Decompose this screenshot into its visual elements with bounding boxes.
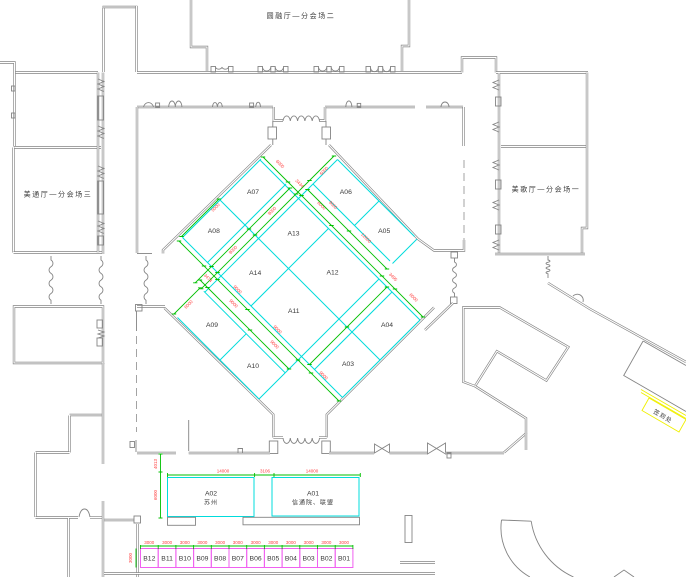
svg-text:A14: A14 xyxy=(249,270,261,277)
svg-text:B05: B05 xyxy=(267,556,279,563)
svg-text:B12: B12 xyxy=(143,556,155,563)
svg-text:信通院、联盟: 信通院、联盟 xyxy=(292,499,334,507)
svg-text:3000: 3000 xyxy=(180,540,191,545)
svg-text:3000: 3000 xyxy=(128,552,133,563)
svg-text:圆融厅—分会场二: 圆融厅—分会场二 xyxy=(267,11,336,20)
svg-text:A10: A10 xyxy=(247,363,259,370)
svg-text:3000: 3000 xyxy=(286,540,297,545)
svg-text:14000: 14000 xyxy=(306,469,319,474)
svg-text:4013: 4013 xyxy=(153,458,158,469)
svg-text:B09: B09 xyxy=(196,556,208,563)
svg-text:B01: B01 xyxy=(338,556,350,563)
svg-text:A07: A07 xyxy=(247,189,259,196)
svg-text:美歌厅—分会场一: 美歌厅—分会场一 xyxy=(512,185,581,194)
svg-text:3000: 3000 xyxy=(197,540,208,545)
svg-text:A09: A09 xyxy=(206,322,218,329)
svg-text:3106: 3106 xyxy=(260,469,271,474)
svg-text:A13: A13 xyxy=(287,231,299,238)
svg-text:3000: 3000 xyxy=(162,540,173,545)
svg-text:B04: B04 xyxy=(285,556,297,563)
svg-text:A11: A11 xyxy=(288,308,300,315)
svg-text:A08: A08 xyxy=(208,228,220,235)
svg-text:B07: B07 xyxy=(232,556,244,563)
svg-text:A06: A06 xyxy=(340,189,352,196)
svg-text:B02: B02 xyxy=(320,556,332,563)
svg-text:B03: B03 xyxy=(303,556,315,563)
svg-text:14000: 14000 xyxy=(217,469,230,474)
svg-text:3000: 3000 xyxy=(304,540,315,545)
svg-text:A12: A12 xyxy=(326,270,338,277)
svg-text:B06: B06 xyxy=(250,556,262,563)
svg-text:A04: A04 xyxy=(381,322,393,329)
svg-text:B08: B08 xyxy=(214,556,226,563)
svg-text:B11: B11 xyxy=(161,556,173,563)
svg-text:6000: 6000 xyxy=(153,489,158,500)
svg-text:A02: A02 xyxy=(205,491,217,498)
svg-text:3000: 3000 xyxy=(251,540,262,545)
svg-text:苏州: 苏州 xyxy=(204,499,218,507)
svg-text:3000: 3000 xyxy=(215,540,226,545)
svg-text:3000: 3000 xyxy=(321,540,332,545)
svg-text:3000: 3000 xyxy=(268,540,279,545)
svg-text:A03: A03 xyxy=(342,361,354,368)
svg-text:美通厅—分会场三: 美通厅—分会场三 xyxy=(24,190,93,199)
svg-text:A05: A05 xyxy=(378,228,390,235)
svg-text:B10: B10 xyxy=(179,556,191,563)
svg-text:3000: 3000 xyxy=(233,540,244,545)
svg-text:A01: A01 xyxy=(307,491,319,498)
svg-text:3000: 3000 xyxy=(144,540,155,545)
svg-text:3000: 3000 xyxy=(339,540,350,545)
